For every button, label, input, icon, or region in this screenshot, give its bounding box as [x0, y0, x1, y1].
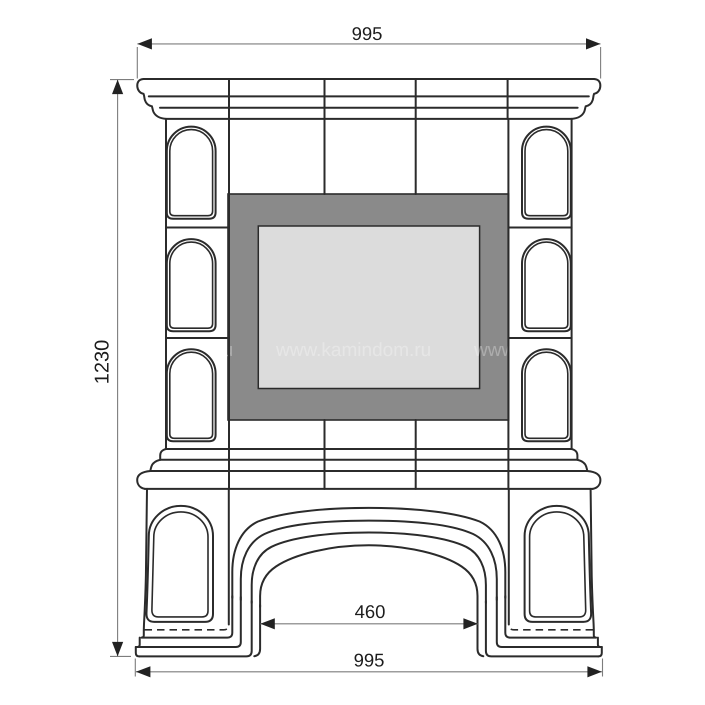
svg-text:460: 460	[355, 601, 386, 622]
svg-text:995: 995	[354, 650, 385, 671]
svg-text:995: 995	[352, 23, 383, 44]
svg-text:1230: 1230	[92, 340, 114, 385]
svg-text:www.kamindom.ru: www.kamindom.ru	[275, 340, 431, 361]
